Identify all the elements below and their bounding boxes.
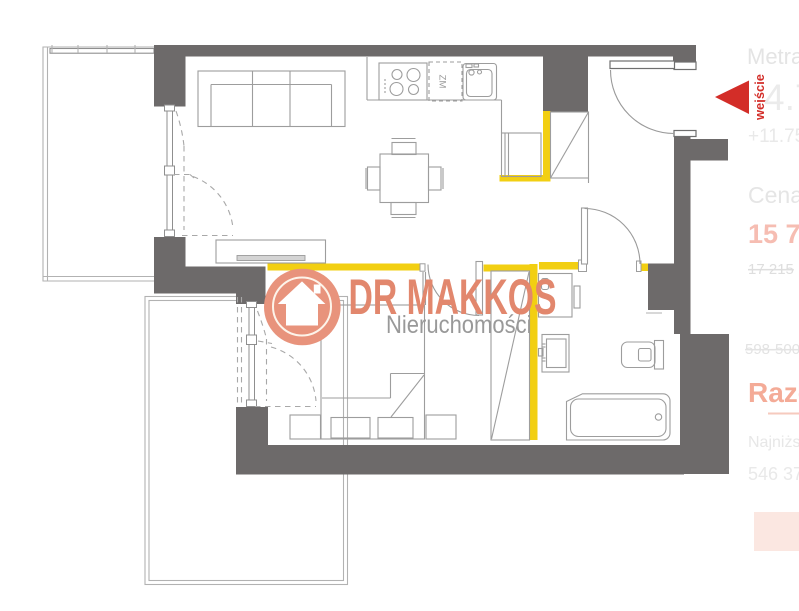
svg-text:4.75: 4.75 [764,77,799,118]
svg-text:+11.75: +11.75 [748,126,799,147]
svg-text:17 215: 17 215 [748,261,794,278]
svg-text:15 750: 15 750 [748,219,799,249]
svg-text:ZM: ZM [436,75,447,89]
svg-text:Razem: Razem [748,377,799,408]
svg-text:Cena: Cena [748,182,799,208]
svg-text:Nieruchomości: Nieruchomości [386,311,532,339]
svg-text:Metraż: Metraż [747,44,799,69]
svg-text:598-500: 598-500 [745,341,799,358]
svg-text:546 375: 546 375 [748,464,799,484]
svg-text:Najniższa: Najniższa [748,434,799,451]
